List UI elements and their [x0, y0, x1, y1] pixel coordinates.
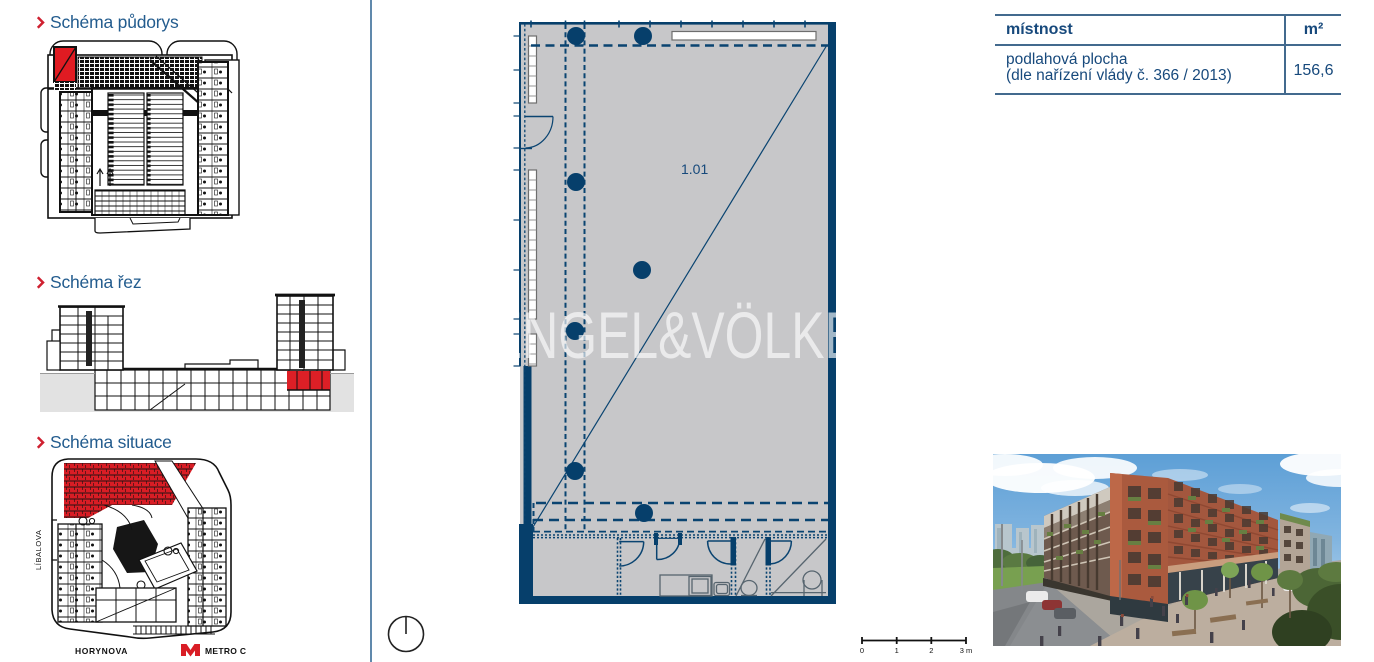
- svg-text:0: 0: [860, 646, 864, 655]
- svg-text:METRO C: METRO C: [205, 646, 246, 656]
- svg-text:ENGEL&VÖLKERS: ENGEL&VÖLKERS: [489, 299, 927, 372]
- svg-text:1: 1: [895, 646, 899, 655]
- svg-text:3 m: 3 m: [960, 646, 973, 655]
- svg-text:1.01: 1.01: [681, 161, 708, 177]
- svg-text:2: 2: [929, 646, 933, 655]
- svg-text:HORYNOVA: HORYNOVA: [75, 646, 128, 656]
- svg-text:LÍBALOVA: LÍBALOVA: [34, 529, 43, 570]
